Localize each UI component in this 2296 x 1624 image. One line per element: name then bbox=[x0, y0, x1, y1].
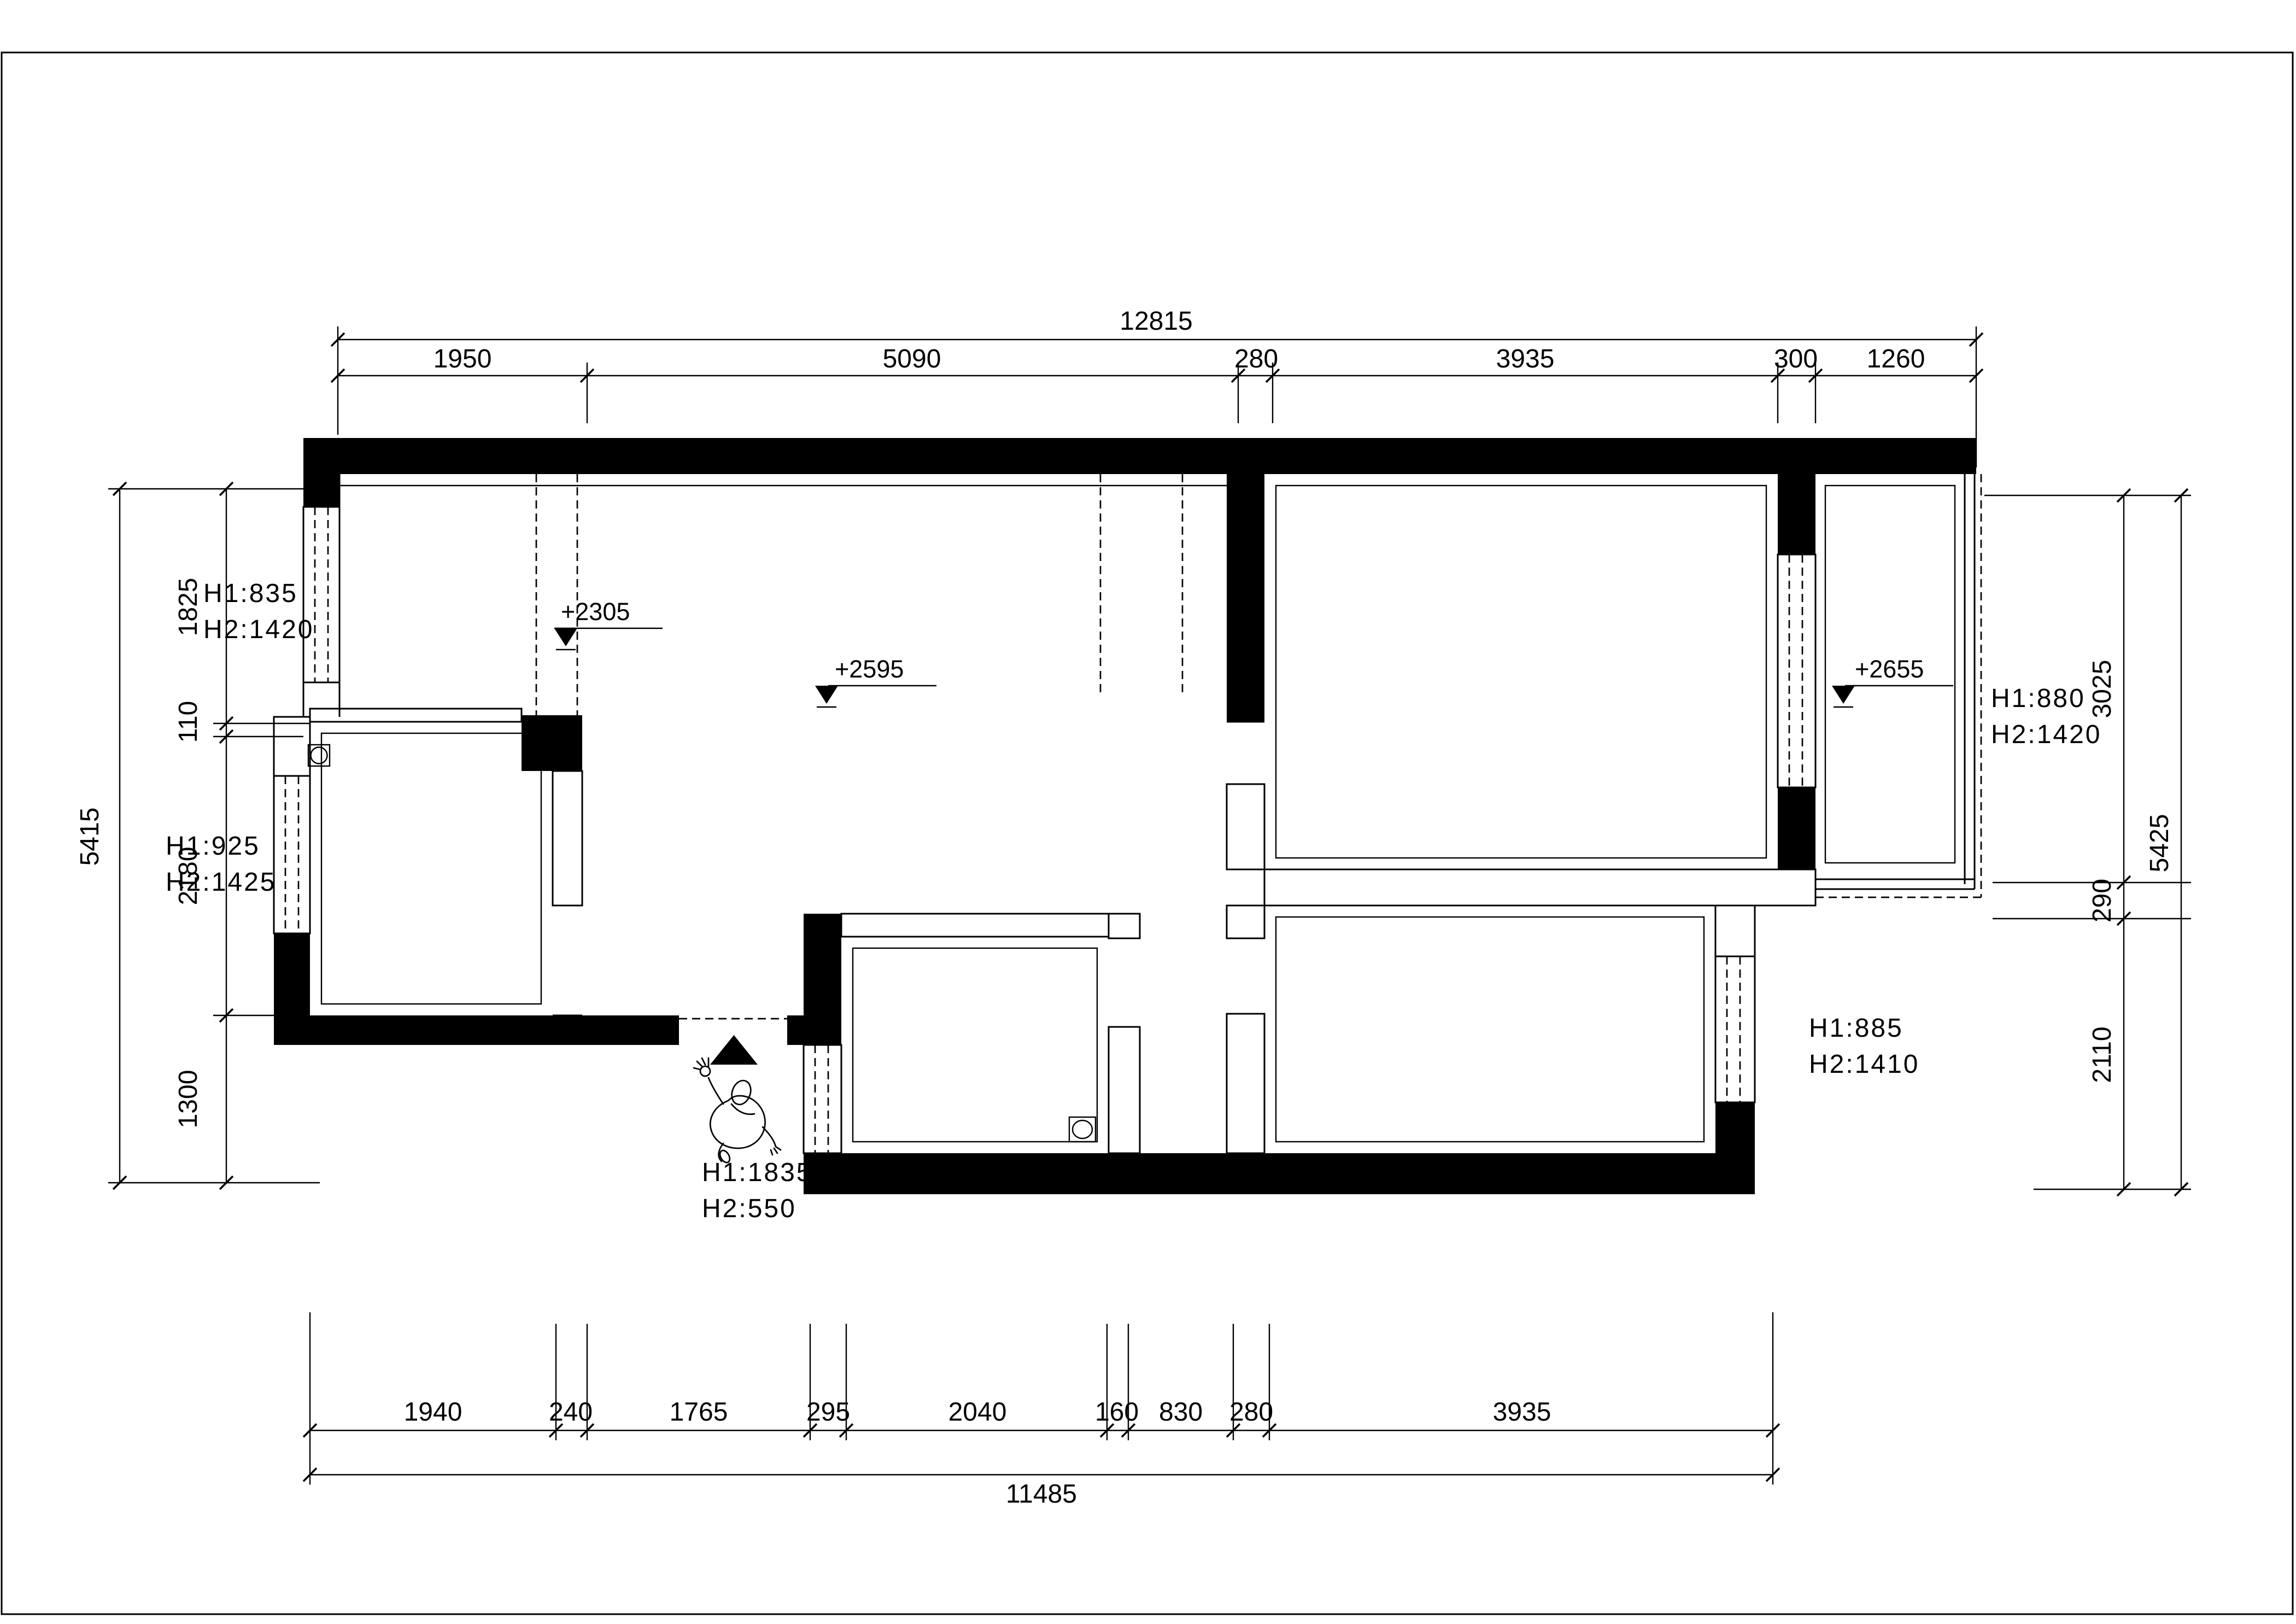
dim-top-total: 12815 bbox=[1120, 307, 1192, 336]
dim-bottom-total: 11485 bbox=[1006, 1480, 1077, 1509]
floor-plan-svg: +2305 +2595 +2655 H1:835 H2:1420 H1:925 … bbox=[0, 0, 2296, 1624]
dim-left-3: 1300 bbox=[174, 1070, 203, 1129]
win-right-upper-h1: H1:880 bbox=[1991, 684, 2086, 713]
dim-left-2: 2180 bbox=[174, 847, 203, 906]
win-left-upper-h1: H1:835 bbox=[203, 579, 298, 608]
window-right-lower bbox=[1715, 956, 1755, 1102]
bedroom-pier bbox=[522, 715, 582, 771]
dim-bot-5: 160 bbox=[1095, 1398, 1139, 1427]
win-right-upper-h2: H2:1420 bbox=[1991, 720, 2101, 749]
bedroom-right-wall bbox=[553, 771, 582, 906]
wall-bottom-right-corner bbox=[1715, 1102, 1755, 1194]
window-bathroom bbox=[804, 1045, 841, 1153]
dim-top-5: 1260 bbox=[1867, 344, 1925, 373]
dim-top-1: 5090 bbox=[883, 344, 941, 373]
bedroom1-inner bbox=[1276, 486, 1766, 858]
level-value: +2595 bbox=[835, 655, 904, 683]
bathroom-right-corner bbox=[1109, 914, 1140, 938]
dim-bot-6: 830 bbox=[1159, 1398, 1203, 1427]
windows bbox=[274, 507, 1815, 1153]
central-wall-thin bbox=[1227, 784, 1264, 869]
window-right-upper bbox=[1778, 554, 1815, 787]
level-marker-living-beam: +2305 bbox=[554, 598, 663, 650]
wall-bottom-main bbox=[804, 1153, 1755, 1194]
wall-bottom-left bbox=[274, 1015, 679, 1045]
window-left-upper bbox=[303, 507, 339, 682]
win-right-lower-h2: H2:1410 bbox=[1809, 1050, 1919, 1079]
dim-top-0: 1950 bbox=[434, 344, 492, 373]
dim-top-4: 300 bbox=[1774, 344, 1818, 373]
toilet-icon bbox=[1069, 1117, 1096, 1142]
level-triangle-icon bbox=[554, 628, 577, 646]
dim-top-3: 3935 bbox=[1496, 344, 1555, 373]
bed2-wall-lower bbox=[1227, 1014, 1264, 1153]
entry-pier bbox=[787, 1015, 804, 1045]
dim-bot-1: 240 bbox=[549, 1398, 593, 1427]
dim-left-total: 5415 bbox=[75, 808, 104, 866]
entry-door-h2: H2:550 bbox=[702, 1194, 796, 1223]
bedroom-top-partition bbox=[310, 709, 522, 722]
dim-bot-4: 2040 bbox=[948, 1398, 1007, 1427]
pipe-detail-icon bbox=[308, 745, 330, 766]
bathroom-right-wall bbox=[1109, 1027, 1140, 1153]
dim-right-total: 5425 bbox=[2145, 814, 2174, 873]
dim-bot-0: 1940 bbox=[404, 1398, 462, 1427]
level-value: +2655 bbox=[1855, 655, 1924, 683]
dim-right-2: 2110 bbox=[2088, 1026, 2117, 1083]
bed2-wall-upper bbox=[1227, 906, 1264, 938]
dividing-wall-right-rooms bbox=[1264, 869, 1815, 906]
entry-arrow-icon bbox=[710, 1035, 758, 1065]
bath-pier bbox=[804, 914, 841, 1045]
dim-left-0: 1825 bbox=[174, 578, 203, 636]
level-value: +2305 bbox=[561, 598, 630, 626]
dim-chain-right: 3025 290 2110 5425 bbox=[1984, 489, 2191, 1196]
dim-bot-8: 3935 bbox=[1493, 1398, 1551, 1427]
wall-central-black bbox=[1227, 474, 1264, 722]
dim-chain-bottom: 1940 240 1765 295 2040 160 830 280 3935 … bbox=[303, 1312, 1779, 1509]
win-left-upper-h2: H2:1420 bbox=[203, 615, 314, 644]
wall-left-upper bbox=[303, 438, 339, 507]
wall-top bbox=[303, 438, 1976, 474]
bedroom2-inner bbox=[1276, 917, 1704, 1142]
level-marker-living: +2595 bbox=[815, 655, 936, 707]
bathroom-top-wall bbox=[841, 914, 1109, 937]
level-triangle-icon bbox=[1832, 686, 1855, 704]
bathroom-inner bbox=[853, 948, 1097, 1142]
dim-bot-2: 1765 bbox=[670, 1398, 728, 1427]
win-right-lower-h1: H1:885 bbox=[1809, 1014, 1903, 1043]
level-marker-balcony: +2655 bbox=[1832, 655, 1953, 707]
bedroom-left-inner bbox=[321, 733, 541, 1004]
wall-right-upper-black bbox=[1778, 474, 1815, 554]
dim-ticks bbox=[331, 333, 1983, 382]
dim-right-0: 3025 bbox=[2088, 660, 2117, 718]
level-triangle-icon bbox=[815, 686, 838, 704]
dim-top-2: 280 bbox=[1234, 344, 1278, 373]
bed2-right-wall-upper bbox=[1715, 906, 1755, 956]
sheet-frame bbox=[2, 52, 2293, 1614]
dim-ticks bbox=[303, 1424, 1779, 1481]
person-icon bbox=[694, 1058, 781, 1164]
dim-bot-3: 295 bbox=[806, 1398, 850, 1427]
dim-left-1: 110 bbox=[174, 701, 203, 743]
partition-walls bbox=[274, 474, 1815, 1153]
window-left-lower bbox=[274, 776, 310, 933]
dim-right-1: 290 bbox=[2088, 879, 2117, 922]
entry-door-h1: H1:1835 bbox=[702, 1158, 812, 1187]
dim-bot-7: 280 bbox=[1229, 1398, 1273, 1427]
wall-left-jog bbox=[274, 717, 310, 776]
